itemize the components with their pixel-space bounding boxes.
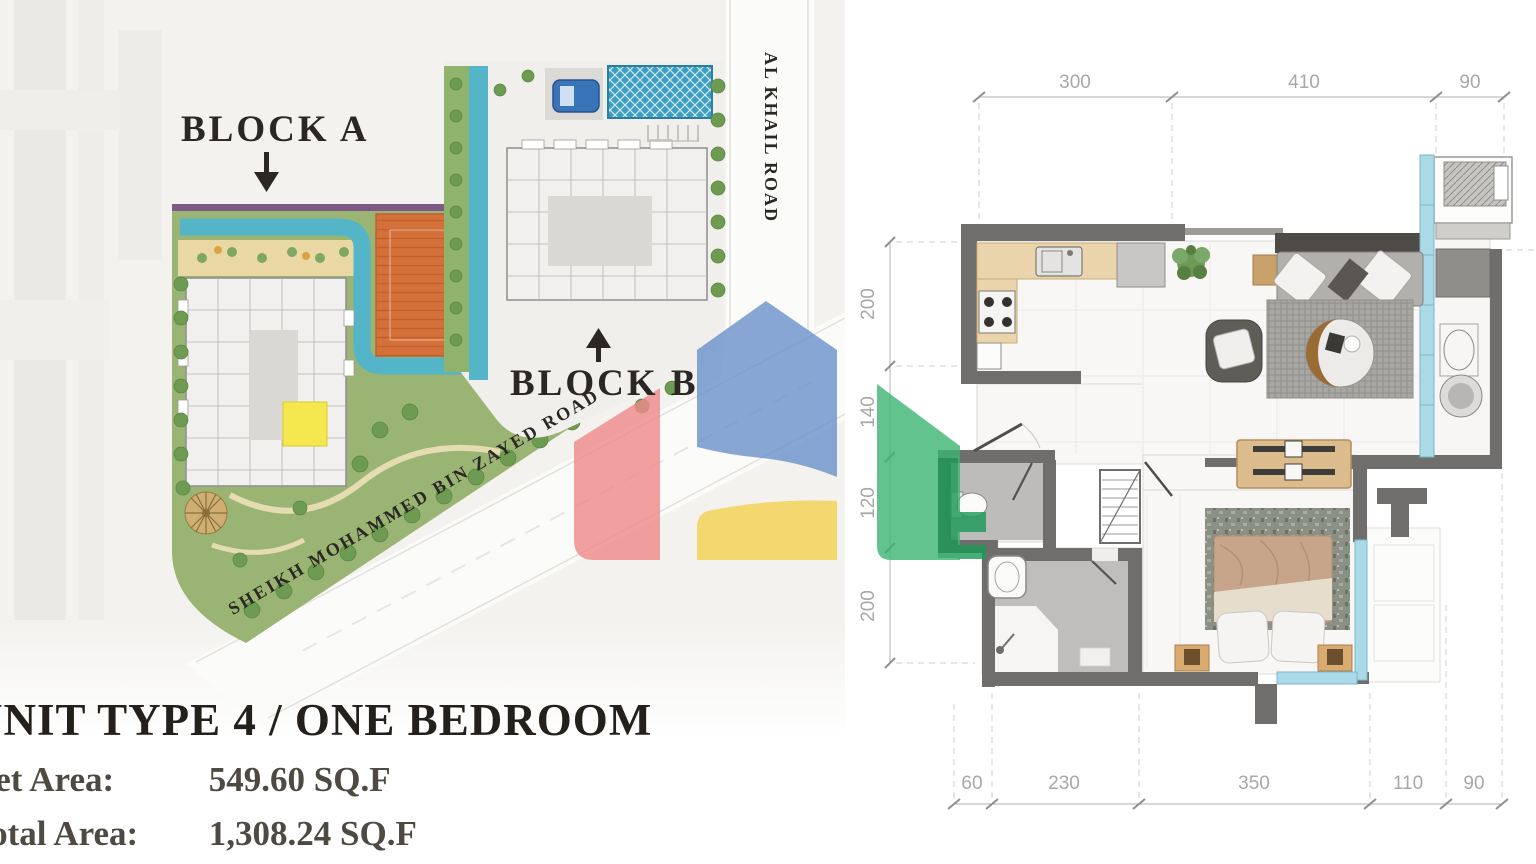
block-b-building bbox=[507, 140, 707, 300]
swimming-pool bbox=[608, 66, 712, 118]
dim-bottom-60: 60 bbox=[961, 773, 982, 794]
bathroom bbox=[988, 556, 1128, 672]
bedroom-bottom-window bbox=[1277, 672, 1357, 684]
net-area-value: 549.60 SQ.F bbox=[209, 760, 391, 799]
block-a-label: BLOCK A bbox=[181, 108, 370, 151]
pillow bbox=[1271, 611, 1326, 664]
fridge bbox=[1117, 243, 1165, 287]
dim-top-300: 300 bbox=[1059, 72, 1091, 93]
nightstand-left bbox=[1175, 645, 1209, 671]
watermark-blue-shape bbox=[697, 301, 837, 477]
watermark-red-shape bbox=[574, 388, 660, 560]
sofa bbox=[1273, 249, 1423, 306]
highlighted-unit bbox=[283, 402, 327, 446]
armchair bbox=[1206, 320, 1262, 382]
plant bbox=[1172, 245, 1210, 280]
pillow bbox=[1216, 610, 1269, 663]
watermark-yellow-shape bbox=[697, 500, 837, 560]
dim-bottom-350: 350 bbox=[1238, 773, 1270, 794]
pool-cabana bbox=[553, 80, 599, 112]
coffee-table bbox=[1306, 319, 1374, 387]
water-channel bbox=[469, 66, 488, 380]
dim-top-90: 90 bbox=[1459, 72, 1480, 93]
washbasin bbox=[1444, 330, 1474, 370]
bed bbox=[1214, 536, 1332, 664]
unit-info: UNIT TYPE 4 / ONE BEDROOM Net Area: 549.… bbox=[0, 694, 652, 854]
floorplan-sheet: 300 410 90 200 140 120 200 60 230 350 11… bbox=[0, 0, 1536, 864]
living-glazing bbox=[1420, 155, 1434, 457]
dim-left-200b: 200 bbox=[858, 590, 879, 622]
dim-top-410: 410 bbox=[1288, 72, 1320, 93]
dim-bottom-230: 230 bbox=[1048, 773, 1080, 794]
dim-bottom-90: 90 bbox=[1463, 773, 1484, 794]
unit-title: UNIT TYPE 4 / ONE BEDROOM bbox=[0, 694, 652, 746]
palm-plaza bbox=[185, 492, 227, 534]
net-area-line: Net Area: 549.60 SQ.F bbox=[0, 760, 652, 800]
bedroom-window bbox=[1355, 540, 1367, 680]
dim-bottom-110: 110 bbox=[1393, 773, 1423, 794]
block-a-building bbox=[178, 278, 354, 486]
total-area-line: Total Area: 1,308.24 SQ.F bbox=[0, 814, 652, 854]
total-area-label: Total Area: bbox=[0, 814, 200, 854]
watermark-door-shape bbox=[938, 458, 986, 559]
sofa-feature-wall bbox=[1275, 233, 1430, 253]
net-area-label: Net Area: bbox=[0, 760, 200, 800]
nightstand-right bbox=[1318, 645, 1352, 671]
total-area-value: 1,308.24 SQ.F bbox=[209, 814, 417, 853]
watermark-logo bbox=[560, 290, 1000, 570]
side-table bbox=[1253, 255, 1277, 285]
dining-table bbox=[1237, 440, 1351, 488]
bath-mat bbox=[1080, 648, 1110, 666]
hall-closet bbox=[1100, 470, 1140, 543]
al-khail-road-label: AL KHAIL ROAD bbox=[760, 52, 781, 242]
